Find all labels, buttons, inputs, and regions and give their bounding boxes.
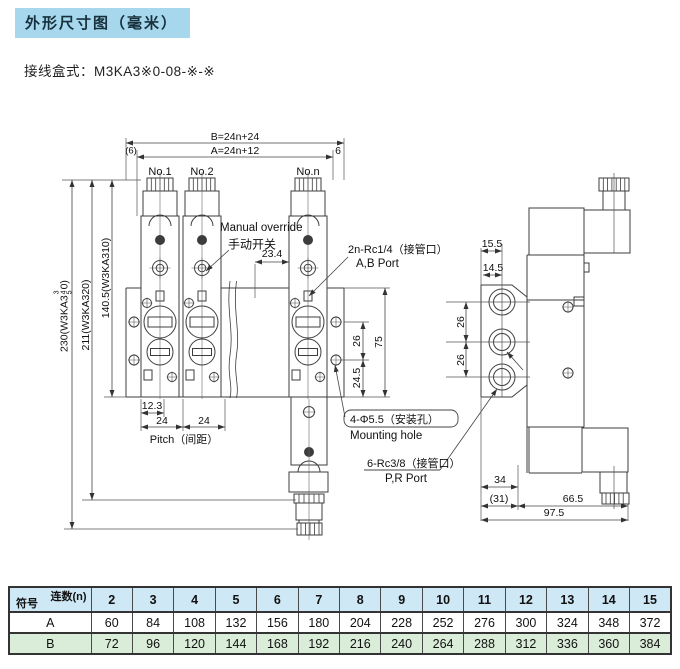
cell: 348: [588, 612, 629, 633]
station-label-2: No.2: [190, 166, 213, 178]
col-header: 8: [340, 587, 381, 612]
cell: 324: [547, 612, 588, 633]
col-header: 12: [505, 587, 546, 612]
cell: 360: [588, 633, 629, 654]
dim-pitch-1: 24: [156, 415, 168, 427]
callout-mounting-en: Mounting hole: [350, 430, 422, 442]
dim-port-row-spacing: 26: [351, 335, 363, 347]
col-header: 11: [464, 587, 505, 612]
dim-side-top-2: 14.5: [483, 262, 503, 274]
cell: 288: [464, 633, 505, 654]
station-label-n: No.n: [296, 166, 319, 178]
dim-height-upper: 140.5(W3KA310): [100, 238, 112, 319]
col-header: 13: [547, 587, 588, 612]
dim-side-bottom-1: 34: [494, 474, 506, 486]
corner-label-top: 连数(n): [50, 588, 86, 604]
dim-base-height: 75: [373, 336, 385, 348]
dim-overall-a: A=24n+12: [211, 145, 259, 157]
dim-side-bottom-2: (31): [490, 493, 509, 505]
pilot-valve: [289, 397, 328, 540]
row-label: B: [9, 633, 91, 654]
cell: 168: [257, 633, 298, 654]
cell: 84: [132, 612, 173, 633]
col-header: 15: [629, 587, 671, 612]
dim-overall-b: B=24n+24: [211, 131, 259, 143]
dim-pitch-2: 24: [198, 415, 210, 427]
cell: 216: [340, 633, 381, 654]
dim-height-total-suffix: 0): [58, 280, 70, 289]
front-view: [62, 138, 497, 540]
dim-height-mid: 211(W3KA320): [80, 279, 92, 350]
dim-pitch-label: Pitch（间距）: [150, 431, 218, 447]
cell: 336: [547, 633, 588, 654]
cell: 312: [505, 633, 546, 654]
callout-ab-port-en: A,B Port: [356, 258, 399, 270]
cell: 384: [629, 633, 671, 654]
dim-end-right: 6: [335, 145, 341, 157]
col-header: 5: [215, 587, 256, 612]
cell: 60: [91, 612, 132, 633]
callout-ab-port-zh: 2n-Rc1/4（接管口）: [348, 241, 448, 257]
cell: 156: [257, 612, 298, 633]
callout-pr-port-zh: 6-Rc3/8（接管口）: [367, 455, 461, 471]
cell: 108: [174, 612, 215, 633]
dim-height-total-prefix: 230(W3KA3: [58, 295, 70, 352]
table-header-row: 连数(n) 符号 2 3 4 5 6 7 8 9 10 11 12 13 14 …: [9, 587, 671, 612]
dim-side-top-1: 15.5: [482, 238, 502, 250]
dim-hole-to-bottom: 24.5: [351, 368, 363, 388]
dim-valve-gap: 23.4: [262, 248, 282, 260]
dim-end-left: (6): [125, 146, 137, 157]
cell: 240: [381, 633, 422, 654]
cell: 264: [422, 633, 463, 654]
cell: 72: [91, 633, 132, 654]
callout-mounting-zh: 4-Φ5.5（安装孔）: [350, 411, 439, 427]
front-extension-lines: [62, 138, 390, 529]
cell: 276: [464, 612, 505, 633]
col-header: 2: [91, 587, 132, 612]
cell: 96: [132, 633, 173, 654]
dimension-table: 连数(n) 符号 2 3 4 5 6 7 8 9 10 11 12 13 14 …: [8, 586, 672, 655]
dim-side-port-2: 26: [455, 354, 467, 366]
side-port-leader: [507, 352, 523, 370]
side-dimension-lines: [466, 251, 628, 520]
page: 外形尺寸图（毫米） 接线盒式：M3KA3※0-08-※-※: [0, 0, 680, 669]
dim-side-bottom-total: 97.5: [544, 507, 564, 519]
side-extension-lines: [446, 173, 628, 521]
cell: 204: [340, 612, 381, 633]
cell: 180: [298, 612, 339, 633]
col-header: 4: [174, 587, 215, 612]
front-dimension-lines: [72, 143, 385, 529]
row-label: A: [9, 612, 91, 633]
col-header: 9: [381, 587, 422, 612]
dim-side-bottom-3: 66.5: [563, 493, 583, 505]
cell: 120: [174, 633, 215, 654]
station-label-1: No.1: [148, 166, 171, 178]
cell: 132: [215, 612, 256, 633]
valve-stations: [141, 172, 327, 399]
dim-port-offset: 12.3: [142, 400, 162, 412]
cell: 144: [215, 633, 256, 654]
corner-label-bottom: 符号: [16, 595, 38, 611]
col-header: 7: [298, 587, 339, 612]
cell: 372: [629, 612, 671, 633]
callout-pr-port-en: P,R Port: [385, 473, 427, 485]
col-header: 3: [132, 587, 173, 612]
callout-manual-override-en: Manual override: [220, 222, 302, 234]
dim-height-total: 230(W3KA3 3 4 5 0): [54, 280, 74, 352]
side-view: [446, 173, 630, 521]
dim-side-port-1: 26: [455, 316, 467, 328]
cell: 252: [422, 612, 463, 633]
table-row-b: B 72 96 120 144 168 192 216 240 264 288 …: [9, 633, 671, 654]
col-header: 14: [588, 587, 629, 612]
table-row-a: A 60 84 108 132 156 180 204 228 252 276 …: [9, 612, 671, 633]
side-body: [481, 178, 630, 504]
cell: 228: [381, 612, 422, 633]
col-header: 6: [257, 587, 298, 612]
cell: 192: [298, 633, 339, 654]
col-header: 10: [422, 587, 463, 612]
dim-height-variant-stack: 3 4 5: [54, 290, 74, 294]
cell: 300: [505, 612, 546, 633]
table-corner-cell: 连数(n) 符号: [9, 587, 91, 612]
dimension-drawing: [0, 0, 680, 669]
